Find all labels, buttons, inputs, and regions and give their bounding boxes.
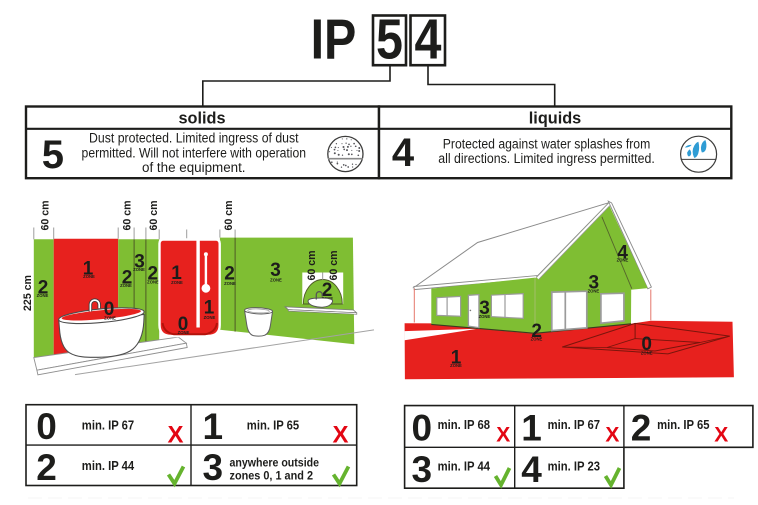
svg-text:of the equipment.: of the equipment. xyxy=(142,160,245,175)
svg-text:60 cm: 60 cm xyxy=(328,250,340,280)
svg-text:IP: IP xyxy=(311,8,357,72)
svg-text:ZONE: ZONE xyxy=(133,267,145,272)
svg-text:min. IP 23: min. IP 23 xyxy=(548,459,600,473)
svg-text:anywhere outside: anywhere outside xyxy=(230,458,320,470)
svg-text:Protected against water splash: Protected against water splashes from xyxy=(443,136,651,151)
svg-text:all directions. Limited ingres: all directions. Limited ingress permitte… xyxy=(438,151,655,166)
svg-text:ZONE: ZONE xyxy=(479,314,491,319)
svg-text:min. IP 65: min. IP 65 xyxy=(247,418,299,433)
svg-text:ZONE: ZONE xyxy=(204,315,216,320)
svg-text:ZONE: ZONE xyxy=(641,350,653,355)
svg-text:60 cm: 60 cm xyxy=(40,200,52,230)
svg-text:permitted. Will not interfere: permitted. Will not interfere with opera… xyxy=(82,145,307,160)
svg-text:60 cm: 60 cm xyxy=(122,200,134,230)
svg-text:3: 3 xyxy=(412,449,433,490)
svg-text:1: 1 xyxy=(203,406,224,447)
svg-text:ZONE: ZONE xyxy=(588,288,600,293)
svg-text:ZONE: ZONE xyxy=(83,274,95,279)
svg-text:4: 4 xyxy=(415,8,442,72)
svg-text:60 cm: 60 cm xyxy=(148,200,160,230)
svg-text:ZONE: ZONE xyxy=(617,258,629,263)
svg-text:X: X xyxy=(605,423,619,446)
svg-text:ZONE: ZONE xyxy=(531,337,543,342)
svg-text:2: 2 xyxy=(36,447,57,488)
svg-text:min. IP 68: min. IP 68 xyxy=(438,418,490,432)
svg-text:ZONE: ZONE xyxy=(171,280,183,285)
svg-text:0: 0 xyxy=(412,408,433,449)
svg-text:4: 4 xyxy=(521,449,542,490)
svg-text:ZONE: ZONE xyxy=(224,281,236,286)
svg-text:1: 1 xyxy=(521,408,542,449)
svg-text:X: X xyxy=(714,423,728,446)
svg-text:zones 0, 1 and 2: zones 0, 1 and 2 xyxy=(230,471,314,483)
svg-text:X: X xyxy=(332,422,348,449)
svg-text:5: 5 xyxy=(376,8,403,72)
svg-text:Dust protected. Limited ingres: Dust protected. Limited ingress of dust xyxy=(89,131,299,146)
svg-text:3: 3 xyxy=(203,447,224,488)
svg-text:min. IP 44: min. IP 44 xyxy=(82,458,135,473)
svg-text:X: X xyxy=(167,422,183,449)
svg-text:ZONE: ZONE xyxy=(120,283,132,288)
svg-text:ZONE: ZONE xyxy=(104,315,116,320)
svg-text:liquids: liquids xyxy=(529,110,581,128)
svg-text:ZONE: ZONE xyxy=(37,293,49,298)
svg-text:225 cm: 225 cm xyxy=(22,275,34,311)
svg-text:5: 5 xyxy=(42,133,64,177)
svg-text:60 cm: 60 cm xyxy=(223,200,235,230)
svg-text:min. IP 67: min. IP 67 xyxy=(82,418,134,433)
svg-text:ZONE: ZONE xyxy=(178,330,190,335)
svg-text:2: 2 xyxy=(631,408,652,449)
svg-text:60 cm: 60 cm xyxy=(306,250,318,280)
svg-text:4: 4 xyxy=(392,131,415,175)
svg-text:min. IP 44: min. IP 44 xyxy=(438,459,490,473)
svg-text:X: X xyxy=(496,423,510,446)
svg-text:0: 0 xyxy=(36,406,57,447)
svg-text:min. IP 65: min. IP 65 xyxy=(657,418,709,432)
svg-text:min. IP 67: min. IP 67 xyxy=(548,418,600,432)
svg-text:solids: solids xyxy=(178,110,225,128)
svg-text:ZONE: ZONE xyxy=(450,363,462,368)
svg-text:ZONE: ZONE xyxy=(147,280,159,285)
svg-text:ZONE: ZONE xyxy=(270,277,282,282)
